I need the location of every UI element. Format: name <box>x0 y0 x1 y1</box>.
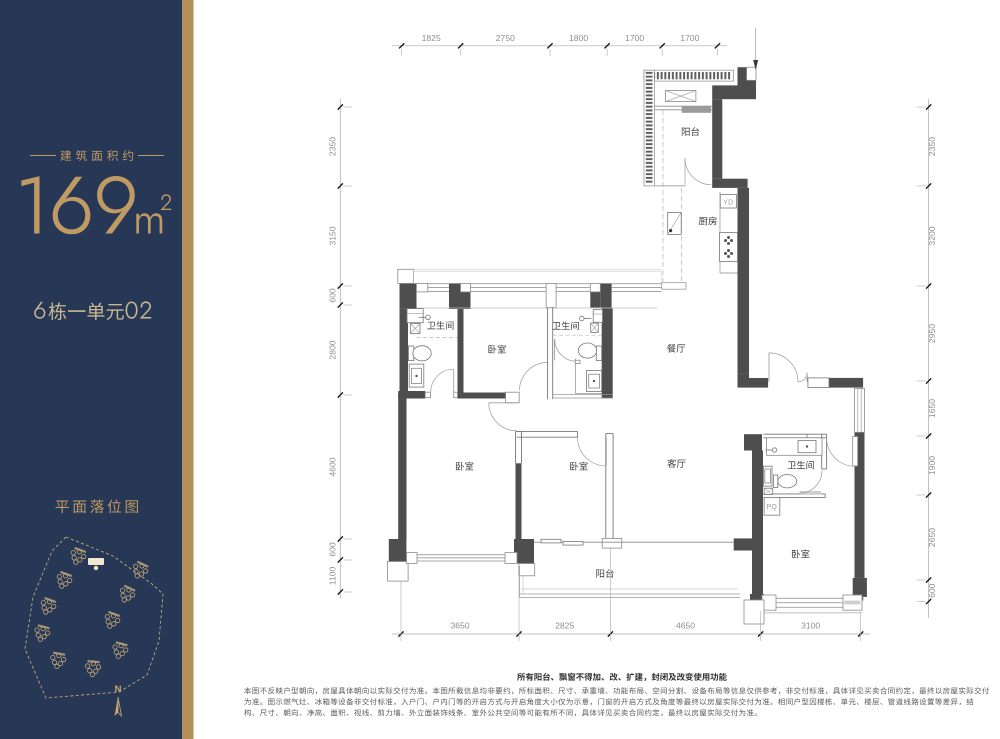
svg-text:1700: 1700 <box>680 33 699 43</box>
svg-text:4600: 4600 <box>327 457 337 476</box>
svg-text:N: N <box>115 684 122 695</box>
svg-text:1650: 1650 <box>927 399 937 418</box>
svg-text:1700: 1700 <box>625 33 644 43</box>
svg-text:1100: 1100 <box>327 567 337 586</box>
svg-text:3650: 3650 <box>450 621 469 631</box>
svg-text:600: 600 <box>927 583 937 598</box>
svg-text:2825: 2825 <box>555 621 574 631</box>
svg-text:1800: 1800 <box>569 33 588 43</box>
svg-text:1825: 1825 <box>422 33 441 43</box>
svg-text:2950: 2950 <box>927 324 937 343</box>
svg-text:4650: 4650 <box>676 621 695 631</box>
svg-text:YD: YD <box>723 199 733 206</box>
svg-text:2650: 2650 <box>927 528 937 547</box>
svg-text:600: 600 <box>327 288 337 303</box>
svg-text:3200: 3200 <box>927 226 937 245</box>
svg-text:2800: 2800 <box>327 340 337 359</box>
svg-text:2350: 2350 <box>927 137 937 156</box>
svg-text:2750: 2750 <box>496 33 515 43</box>
svg-text:1900: 1900 <box>927 456 937 475</box>
svg-text:2350: 2350 <box>327 137 337 156</box>
svg-text:PQ: PQ <box>766 504 777 511</box>
svg-text:3150: 3150 <box>327 226 337 245</box>
svg-text:600: 600 <box>327 542 337 557</box>
svg-text:3100: 3100 <box>801 621 820 631</box>
